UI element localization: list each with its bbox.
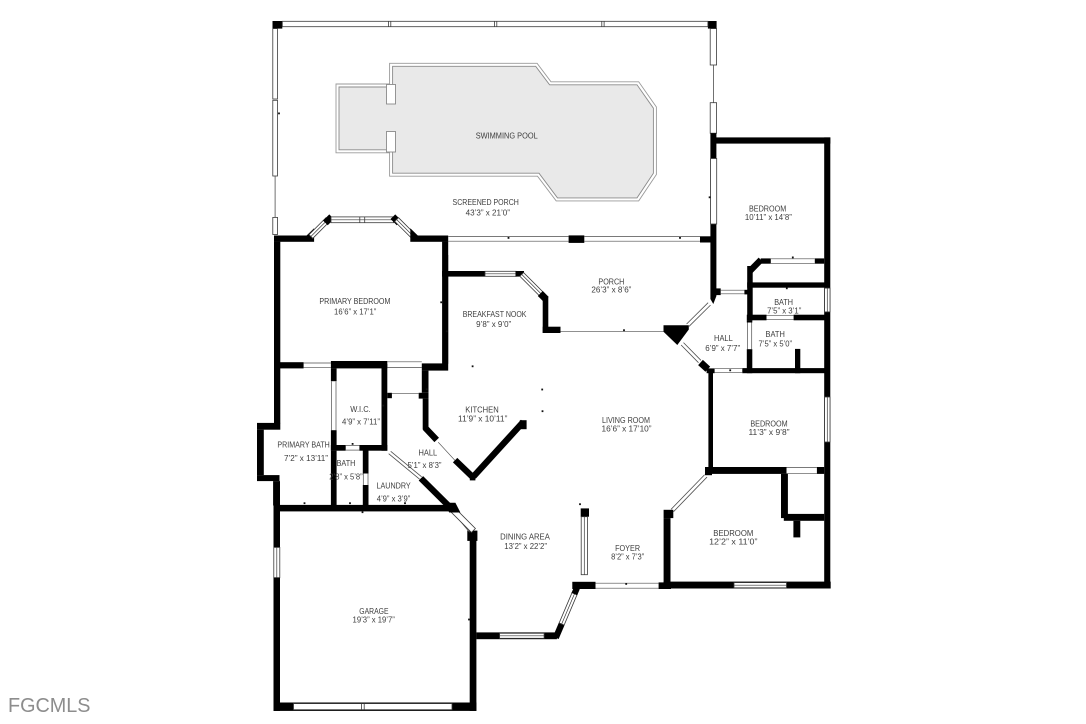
svg-text:11’3” x 9’8”: 11’3” x 9’8”: [749, 428, 790, 437]
svg-text:SWIMMING POOL: SWIMMING POOL: [476, 130, 538, 140]
svg-text:10’11” x 14’8”: 10’11” x 14’8”: [745, 213, 792, 222]
svg-text:KITCHEN: KITCHEN: [465, 405, 498, 415]
svg-text:12’2” x 11’0”: 12’2” x 11’0”: [709, 537, 758, 546]
svg-text:7’2” x 13’11”: 7’2” x 13’11”: [284, 454, 328, 463]
svg-text:26’3” x 8’6”: 26’3” x 8’6”: [591, 285, 631, 294]
svg-text:6’9” x 7’7”: 6’9” x 7’7”: [705, 344, 740, 353]
svg-text:5’1” x 8’3”: 5’1” x 8’3”: [408, 461, 442, 470]
svg-text:19’3” x 19’7”: 19’3” x 19’7”: [353, 616, 396, 625]
svg-text:9’8” x 9’0”: 9’8” x 9’0”: [476, 320, 511, 329]
svg-text:16’6” x 17’10”: 16’6” x 17’10”: [602, 425, 652, 434]
svg-text:13’2” x 22’2”: 13’2” x 22’2”: [504, 542, 547, 551]
svg-text:W.I.C.: W.I.C.: [350, 404, 371, 414]
svg-text:BEDROOM: BEDROOM: [750, 419, 787, 429]
svg-text:HALL: HALL: [418, 447, 437, 457]
svg-text:BATH: BATH: [766, 329, 785, 339]
svg-text:SCREENED PORCH: SCREENED PORCH: [453, 197, 519, 207]
svg-text:4’9” x 3’9”: 4’9” x 3’9”: [377, 495, 411, 504]
svg-text:4’9” x 7’11”: 4’9” x 7’11”: [342, 418, 380, 427]
svg-text:GARAGE: GARAGE: [359, 606, 388, 616]
svg-text:16’6” x 17’1”: 16’6” x 17’1”: [334, 308, 377, 317]
svg-text:2’8” x 5’8”: 2’8” x 5’8”: [329, 473, 363, 482]
svg-text:HALL: HALL: [714, 333, 733, 343]
svg-text:7’5” x 3’1”: 7’5” x 3’1”: [767, 307, 802, 316]
svg-text:11’9” x 10’11”: 11’9” x 10’11”: [458, 414, 508, 423]
svg-text:7’5” x 5’0”: 7’5” x 5’0”: [759, 340, 793, 349]
svg-text:FGCMLS: FGCMLS: [8, 694, 91, 717]
svg-text:8’2” x 7’3”: 8’2” x 7’3”: [611, 553, 645, 562]
svg-text:43’3” x 21’0”: 43’3” x 21’0”: [466, 209, 511, 218]
svg-text:BREAKFAST NOOK: BREAKFAST NOOK: [463, 309, 527, 319]
svg-text:PRIMARY BEDROOM: PRIMARY BEDROOM: [319, 296, 390, 306]
svg-text:DINING AREA: DINING AREA: [500, 531, 550, 541]
svg-text:LAUNDRY: LAUNDRY: [377, 480, 411, 490]
svg-text:BATH: BATH: [337, 458, 356, 468]
svg-text:PRIMARY BATH: PRIMARY BATH: [277, 439, 329, 449]
svg-text:LIVING ROOM: LIVING ROOM: [602, 415, 650, 425]
